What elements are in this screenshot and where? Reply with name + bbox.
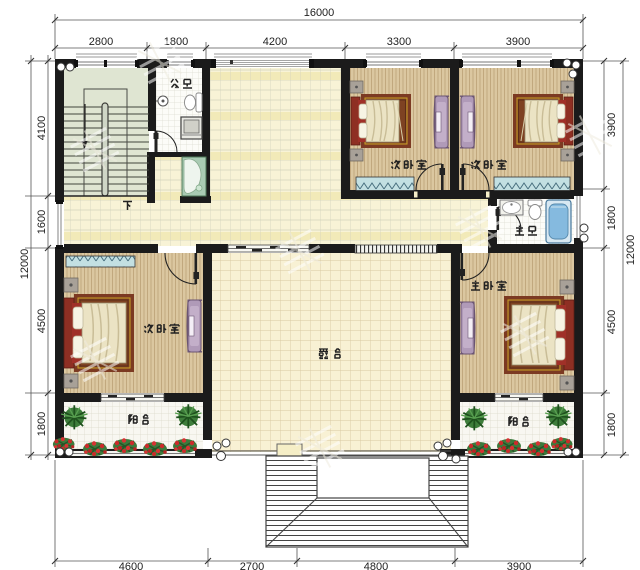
- svg-text:1800: 1800: [36, 412, 48, 436]
- svg-text:3900: 3900: [606, 113, 618, 137]
- svg-text:1600: 1600: [36, 210, 48, 234]
- svg-text:4600: 4600: [119, 561, 143, 570]
- svg-text:16000: 16000: [304, 7, 335, 19]
- svg-text:1800: 1800: [606, 413, 618, 437]
- svg-text:4200: 4200: [263, 36, 287, 48]
- svg-text:4500: 4500: [36, 309, 48, 333]
- svg-text:4500: 4500: [606, 310, 618, 334]
- svg-text:3300: 3300: [387, 36, 411, 48]
- svg-text:2800: 2800: [89, 36, 113, 48]
- svg-text:12000: 12000: [19, 249, 31, 280]
- svg-text:1800: 1800: [606, 206, 618, 230]
- svg-text:3900: 3900: [507, 561, 531, 570]
- svg-text:2700: 2700: [240, 561, 264, 570]
- svg-text:4800: 4800: [364, 561, 388, 570]
- svg-text:3900: 3900: [506, 36, 530, 48]
- svg-text:12000: 12000: [625, 235, 637, 266]
- svg-text:4100: 4100: [36, 116, 48, 140]
